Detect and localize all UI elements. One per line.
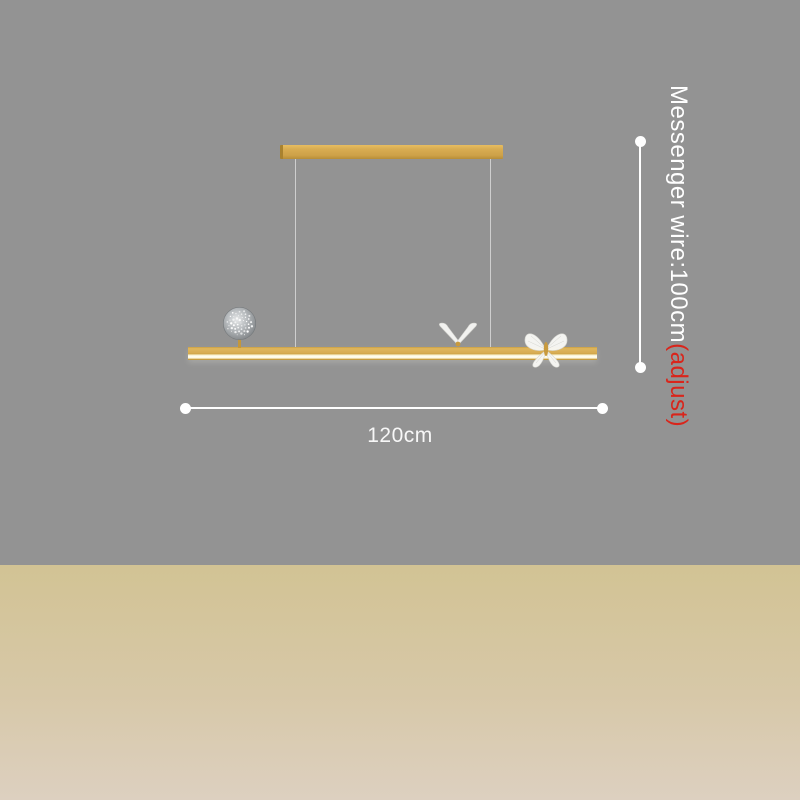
product-image: 120cm Messenger wire:100cm(adjust) Power… <box>0 0 800 800</box>
wire-dimension-text: Messenger wire:100cm <box>665 85 692 343</box>
wire-dimension-dot-top <box>635 136 646 147</box>
width-dimension-line <box>185 407 602 409</box>
diagram-section: 120cm Messenger wire:100cm(adjust) <box>0 0 800 565</box>
wire-dimension-label: Messenger wire:100cm(adjust) <box>664 85 692 405</box>
starry-globe-icon <box>221 305 258 342</box>
width-dimension-label: 120cm <box>300 424 500 448</box>
specs-section: Power(Мощность): LED 29W Area(площад): 1… <box>0 565 800 800</box>
suspension-wire-right <box>490 159 491 347</box>
wire-dimension-dot-bottom <box>635 362 646 373</box>
width-dimension-dot-left <box>180 403 191 414</box>
width-dimension-dot-right <box>597 403 608 414</box>
wire-dimension-line <box>639 141 641 368</box>
butterfly-side-icon <box>434 320 482 348</box>
butterfly-icon <box>523 328 569 370</box>
wire-dimension-adjust-text: (adjust) <box>665 343 692 427</box>
suspension-wire-left <box>295 159 296 347</box>
ceiling-mount-bar <box>280 145 503 159</box>
